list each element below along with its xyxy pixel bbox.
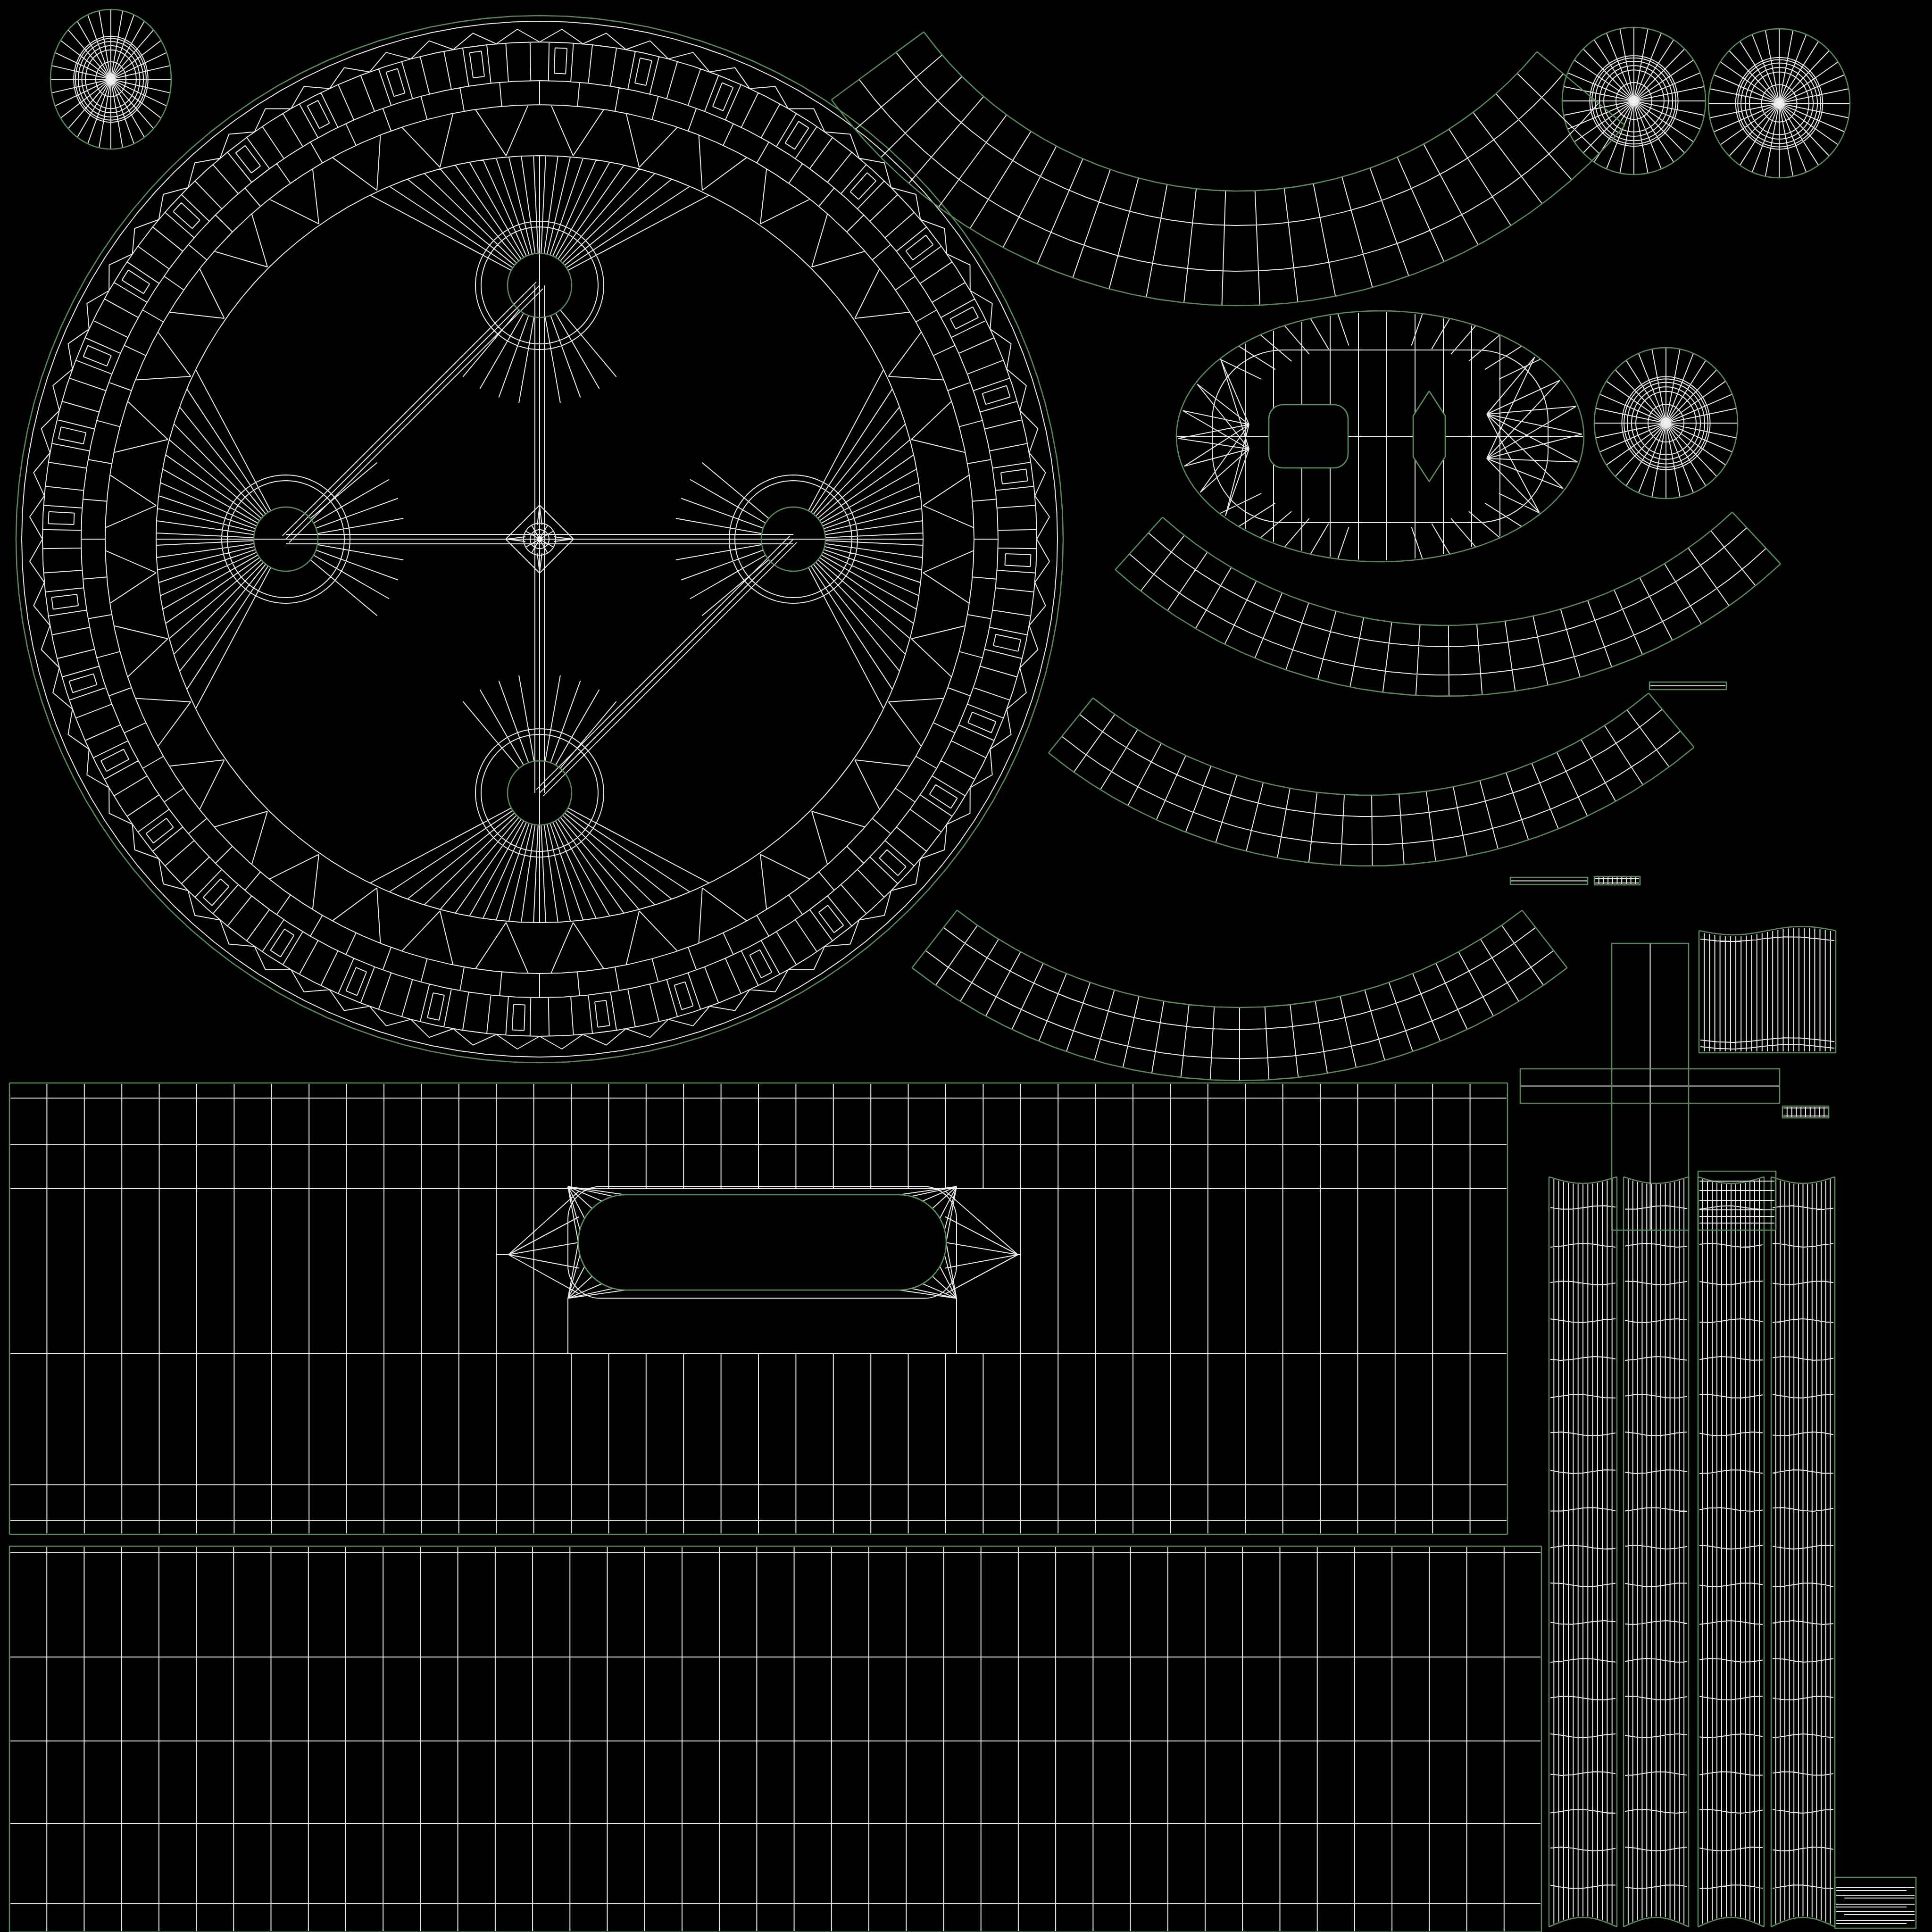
thin-bar-1 [1510, 877, 1588, 884]
ladder-strip-3 [1698, 1177, 1764, 1927]
seam-lines [9, 1546, 1541, 1932]
comb-1 [1594, 876, 1640, 885]
disc-top-right-2 [1708, 29, 1850, 178]
ladder-strip-4 [1771, 1177, 1835, 1927]
wire-lines [1777, 101, 1782, 106]
wire-lines [1699, 1179, 1763, 1924]
corner-stripes [1835, 1877, 1916, 1928]
disc-top-right-1 [1562, 27, 1706, 175]
seam-lines [832, 32, 1625, 306]
wire-lines [1177, 312, 1583, 560]
wire-lines [1625, 1179, 1687, 1924]
cutout-shape [1413, 391, 1445, 482]
wire-lines [1782, 1107, 1829, 1117]
wire-lines [10, 1084, 1507, 1533]
cutout-shape [1269, 405, 1348, 468]
wire-lines [1699, 1181, 1774, 1223]
wire-lines [1550, 1179, 1616, 1924]
wire-lines [1130, 528, 1766, 696]
wire-lines [925, 925, 1554, 1081]
disc-mid-right [1594, 348, 1738, 499]
band-mid-1 [1115, 512, 1781, 696]
uv-wireframe-atlas [0, 0, 1932, 1932]
wire-lines [1594, 877, 1640, 884]
wire-lines [537, 536, 542, 542]
ladder-strip-1 [1549, 1177, 1617, 1927]
wire-lines [1062, 709, 1681, 866]
band-mid-3 [912, 910, 1567, 1081]
oval-plate [1176, 311, 1584, 562]
wire-lines [1836, 1888, 1915, 1924]
wire-lines [1700, 928, 1834, 1051]
ladder-strip-2 [1624, 1177, 1689, 1927]
wire-lines [108, 77, 113, 82]
wire-lines [10, 1547, 1541, 1931]
band-top [832, 32, 1625, 306]
uv-wireframe-canvas [0, 0, 1932, 1932]
cutout-shape [578, 1195, 946, 1290]
wire-lines [855, 52, 1599, 306]
band-mid-2 [1049, 693, 1694, 866]
comb-2 [1782, 1106, 1829, 1118]
seam-lines [1049, 693, 1694, 866]
curtain-patch [1699, 926, 1836, 1053]
panel-grid-top [9, 1083, 1507, 1534]
wire-lines [1664, 421, 1668, 425]
seam-lines [1115, 512, 1781, 696]
disc-top-left [50, 9, 171, 149]
thin-bar-2 [1649, 682, 1726, 690]
wire-lines [1632, 99, 1636, 103]
wire-lines [1773, 1179, 1833, 1924]
wheel-island [16, 16, 1063, 1063]
panel-grid-bottom [9, 1546, 1541, 1932]
